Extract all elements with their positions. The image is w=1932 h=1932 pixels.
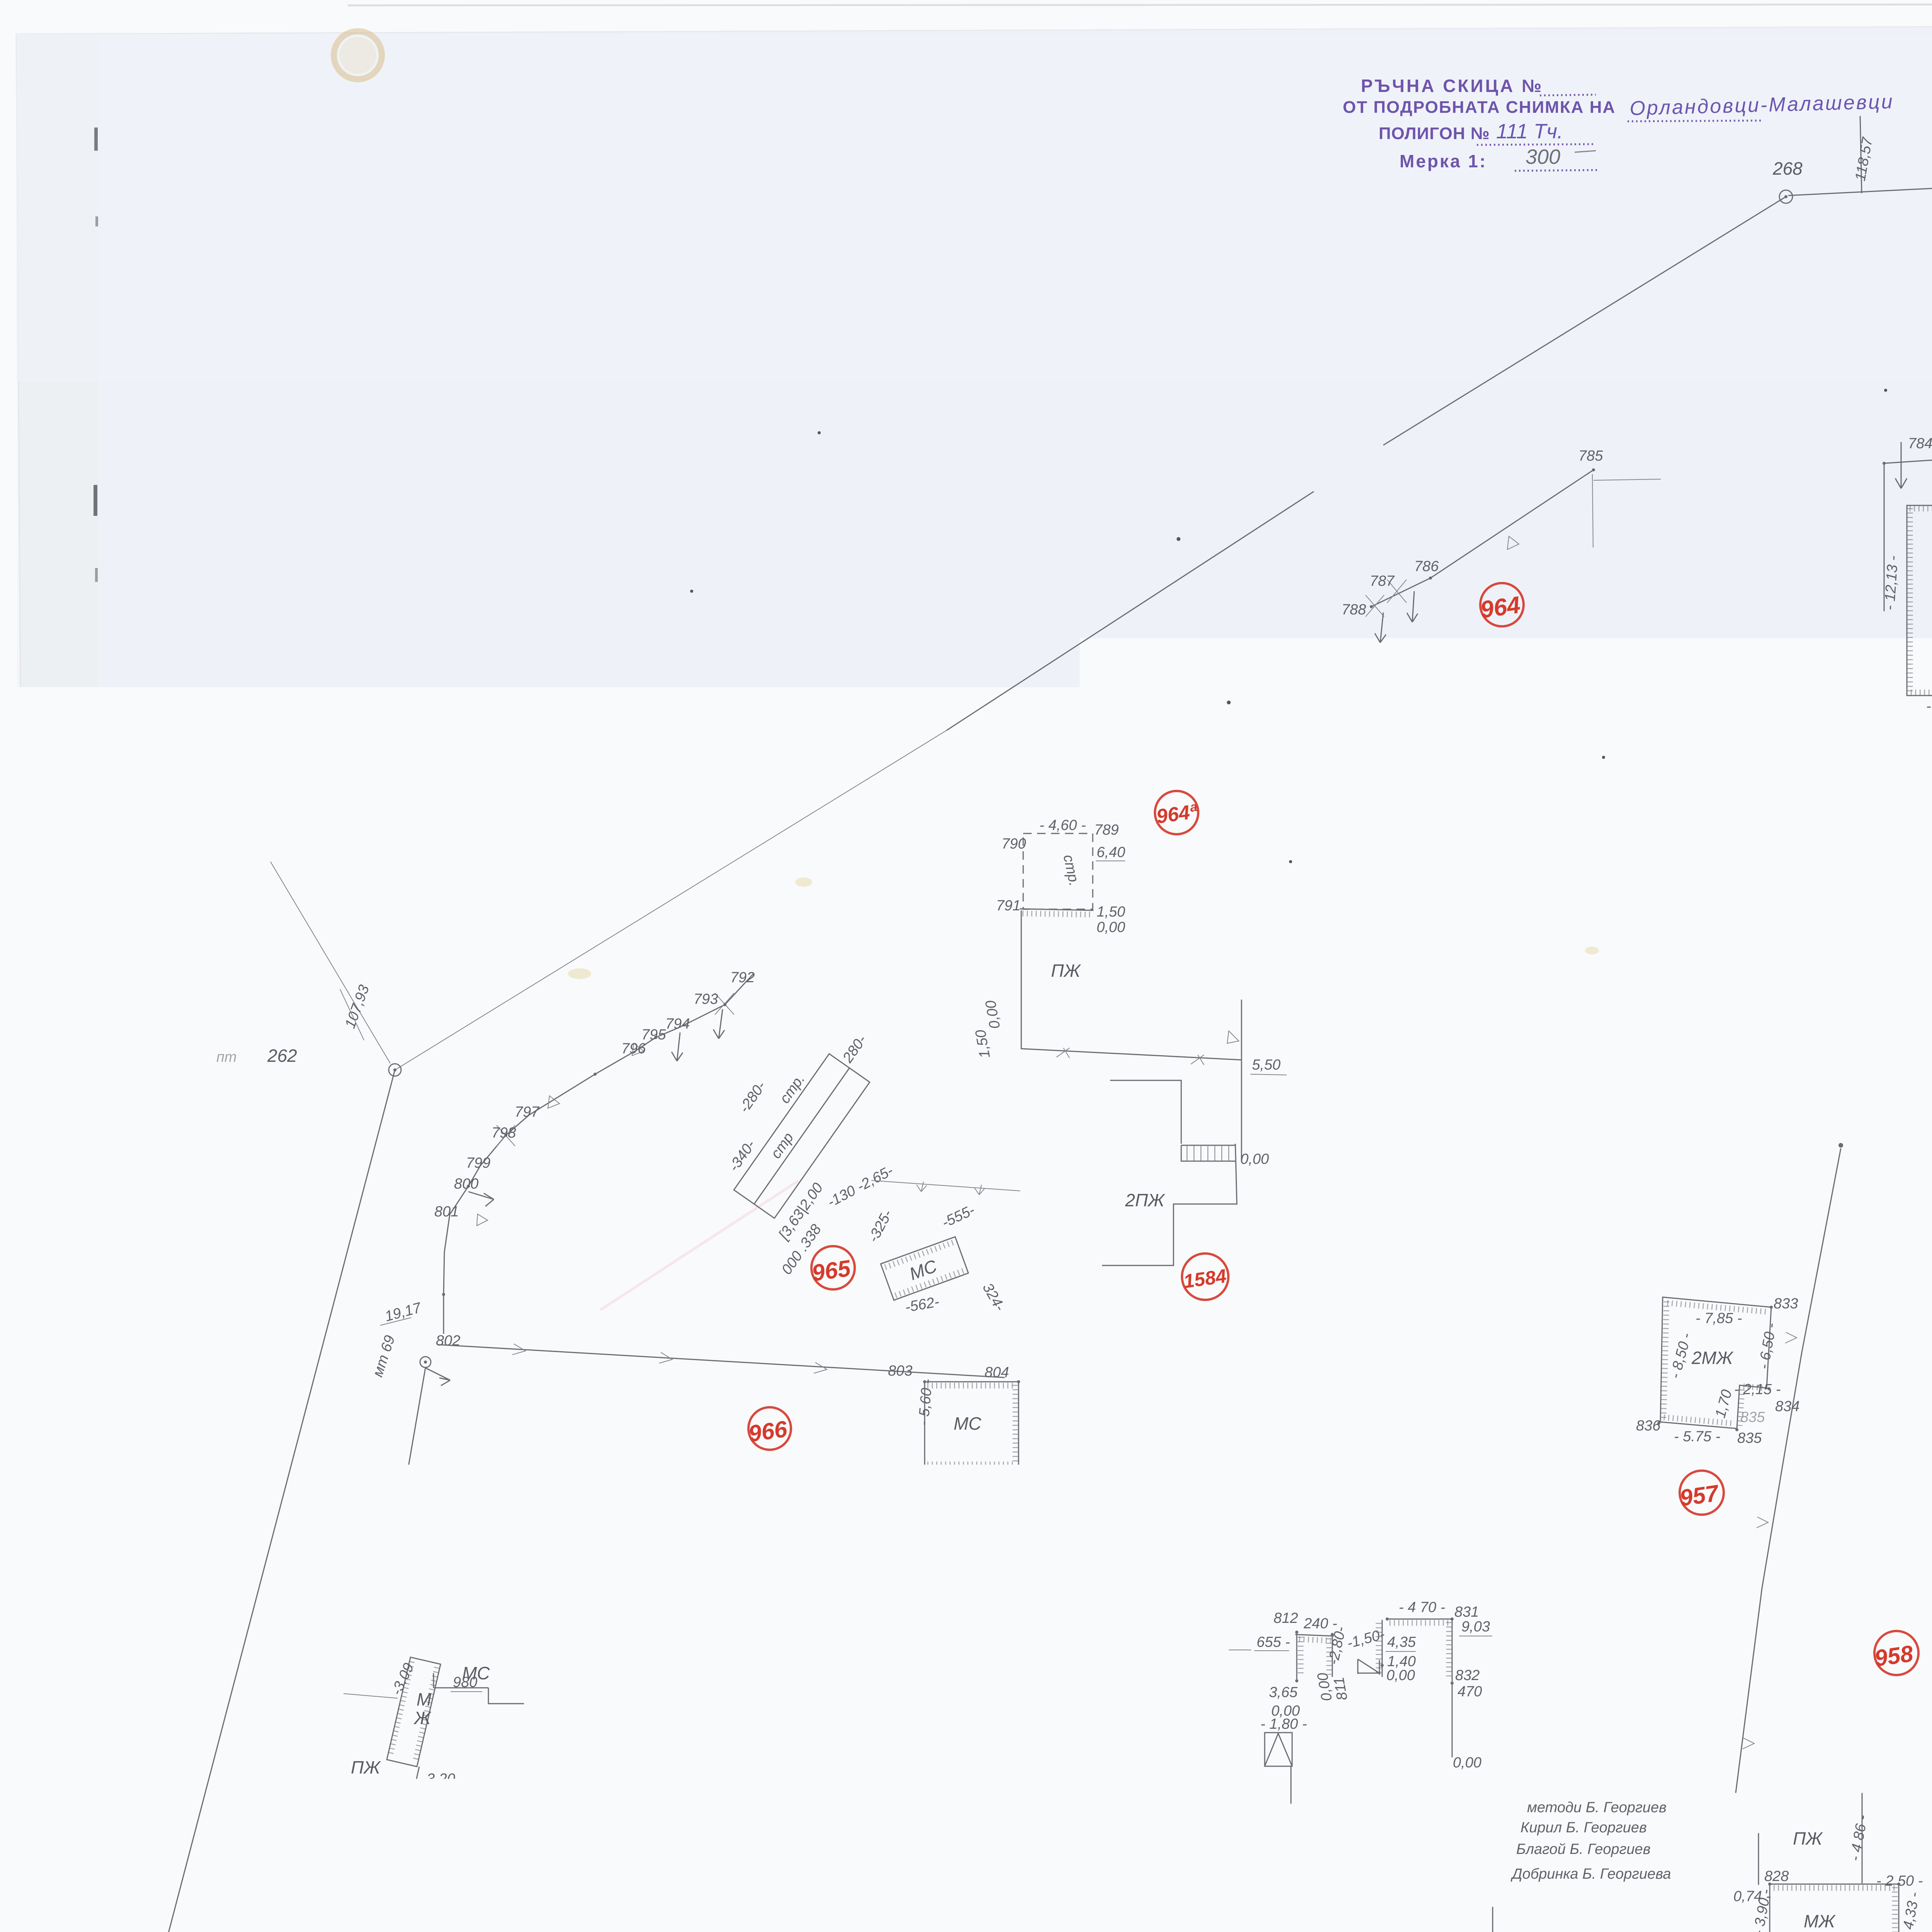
svg-text:789: 789 xyxy=(1094,822,1119,838)
svg-text:812: 812 xyxy=(1274,1610,1298,1626)
svg-text:Козарев: Козарев xyxy=(753,1493,809,1509)
svg-text:2мж: 2мж xyxy=(535,1506,570,1526)
svg-text:954: 954 xyxy=(620,1811,662,1842)
svg-text:834: 834 xyxy=(1775,1398,1799,1415)
svg-text:805: 805 xyxy=(1004,1472,1029,1488)
svg-text:- 2 50 -: - 2 50 - xyxy=(1876,1873,1923,1889)
svg-text:пт: пт xyxy=(216,1049,237,1065)
svg-text:п: п xyxy=(693,1915,701,1932)
svg-text:787: 787 xyxy=(1370,573,1395,589)
svg-text:956: 956 xyxy=(1340,1510,1383,1541)
svg-text:1,50: 1,50 xyxy=(1097,904,1125,920)
svg-text:796: 796 xyxy=(621,1041,646,1057)
svg-text:2,05 -: 2,05 - xyxy=(697,1878,735,1894)
svg-text:- 3,71 -: - 3,71 - xyxy=(1926,698,1932,714)
svg-text:Добринка Б. Георгиева: Добринка Б. Георгиева xyxy=(1510,1866,1671,1882)
svg-text:2ПЖ: 2ПЖ xyxy=(1125,1190,1165,1210)
svg-text:803: 803 xyxy=(888,1363,912,1379)
svg-text:810: 810 xyxy=(665,1876,690,1892)
svg-text:792: 792 xyxy=(730,969,755,986)
svg-text:639: 639 xyxy=(768,1588,811,1621)
svg-text:965: 965 xyxy=(810,1255,853,1286)
svg-text:МС: МС xyxy=(954,1413,981,1434)
svg-text:ПЖ: ПЖ xyxy=(351,1757,381,1777)
svg-text:0,00: 0,00 xyxy=(416,1822,444,1838)
svg-text:111 Тч.: 111 Тч. xyxy=(1496,120,1563,143)
svg-text:957: 957 xyxy=(1678,1480,1721,1511)
svg-text:0,00: 0,00 xyxy=(680,1629,709,1645)
svg-text:4,35: 4,35 xyxy=(1387,1634,1416,1650)
svg-text:790: 790 xyxy=(1002,836,1026,852)
svg-text:0,00: 0,00 xyxy=(1453,1755,1481,1771)
svg-text:806 - 6.45 -: 806 - 6.45 - xyxy=(922,1470,997,1486)
svg-text:петър Георгиев Пиралков: петър Георгиев Пиралков xyxy=(728,1544,911,1560)
svg-text:Мерка 1:: Мерка 1: xyxy=(1400,151,1487,171)
svg-text:- 4,60 -: - 4,60 - xyxy=(1039,817,1086,833)
svg-text:ПЖ: ПЖ xyxy=(1051,961,1081,981)
svg-text:966: 966 xyxy=(747,1416,789,1447)
svg-text:0,00: 0,00 xyxy=(1240,1151,1269,1167)
svg-text:0,00: 0,00 xyxy=(1097,919,1125,935)
svg-text:835: 835 xyxy=(1740,1409,1765,1425)
svg-text:методи Б. Георгиев: методи Б. Георгиев xyxy=(1527,1799,1667,1816)
svg-text:6,40: 6,40 xyxy=(1097,844,1125,861)
svg-text:793: 793 xyxy=(694,991,718,1007)
svg-text:Кирил Б. Георгиев: Кирил Б. Георгиев xyxy=(1520,1820,1647,1836)
svg-text:798: 798 xyxy=(492,1125,516,1141)
svg-text:МС: МС xyxy=(462,1663,490,1683)
svg-text:828: 828 xyxy=(1764,1868,1789,1884)
svg-text:0,00: 0,00 xyxy=(1386,1667,1415,1684)
svg-text:ПЖ: ПЖ xyxy=(1793,1828,1823,1849)
svg-text:797: 797 xyxy=(515,1104,540,1120)
svg-text:831: 831 xyxy=(1454,1604,1479,1620)
svg-text:2МЖ: 2МЖ xyxy=(1691,1348,1734,1368)
svg-text:9,03: 9,03 xyxy=(1461,1619,1490,1635)
svg-text:800: 800 xyxy=(454,1176,478,1192)
svg-text:- 7,85 -: - 7,85 - xyxy=(1696,1310,1742,1327)
svg-text:- 2,15 -: - 2,15 - xyxy=(1734,1381,1781,1398)
svg-text:МЖ: МЖ xyxy=(1804,1911,1836,1931)
svg-text:804: 804 xyxy=(985,1364,1009,1381)
svg-text:268: 268 xyxy=(1772,158,1803,179)
svg-text:- 4 70 -: - 4 70 - xyxy=(1399,1599,1445,1616)
svg-text:- 1,80 -: - 1,80 - xyxy=(1260,1716,1307,1732)
svg-text:262: 262 xyxy=(267,1046,297,1066)
svg-text:ПОЛИГОН №: ПОЛИГОН № xyxy=(1379,124,1490,143)
svg-text:784: 784 xyxy=(1908,435,1932,452)
svg-text:Благой Б. Георгиев: Благой Б. Георгиев xyxy=(1516,1841,1651,1857)
svg-text:835: 835 xyxy=(1737,1430,1762,1446)
svg-text:786: 786 xyxy=(1414,558,1439,575)
svg-text:300: 300 xyxy=(1526,145,1560,168)
svg-text:833: 833 xyxy=(1774,1296,1798,1312)
svg-text:791: 791 xyxy=(996,898,1020,914)
svg-text:3,65: 3,65 xyxy=(1269,1684,1298,1701)
svg-text:910: 910 xyxy=(964,1541,988,1558)
svg-text:794: 794 xyxy=(665,1016,690,1032)
svg-text:5,50: 5,50 xyxy=(1252,1057,1281,1073)
svg-text:Ж: Ж xyxy=(413,1708,432,1728)
svg-text:802: 802 xyxy=(436,1333,460,1349)
svg-text:836: 836 xyxy=(1636,1418,1661,1434)
svg-text:0,00: 0,00 xyxy=(967,1650,995,1667)
svg-text:470: 470 xyxy=(1458,1684,1482,1700)
svg-text:- 5.75 -: - 5.75 - xyxy=(1674,1429,1720,1445)
svg-text:М: М xyxy=(417,1689,432,1709)
svg-text:РЪЧНА СКИЦА №: РЪЧНА СКИЦА № xyxy=(1361,76,1543,96)
svg-text:ОТ ПОДРОБНАТА СНИМКА НА: ОТ ПОДРОБНАТА СНИМКА НА xyxy=(1343,98,1616,117)
svg-text:788: 788 xyxy=(1342,602,1366,618)
svg-text:785: 785 xyxy=(1578,448,1603,464)
svg-text:655 -: 655 - xyxy=(1257,1634,1290,1650)
svg-text:832: 832 xyxy=(1455,1667,1480,1684)
svg-text:799: 799 xyxy=(466,1155,490,1171)
svg-text:801: 801 xyxy=(434,1204,459,1220)
svg-text:3.20: 3.20 xyxy=(427,1771,455,1787)
svg-text:7.25: 7.25 xyxy=(682,1514,711,1531)
svg-text:958: 958 xyxy=(1873,1640,1915,1671)
svg-text:геоги Лазаров: геоги Лазаров xyxy=(717,1473,817,1489)
svg-text:964: 964 xyxy=(1479,592,1522,624)
